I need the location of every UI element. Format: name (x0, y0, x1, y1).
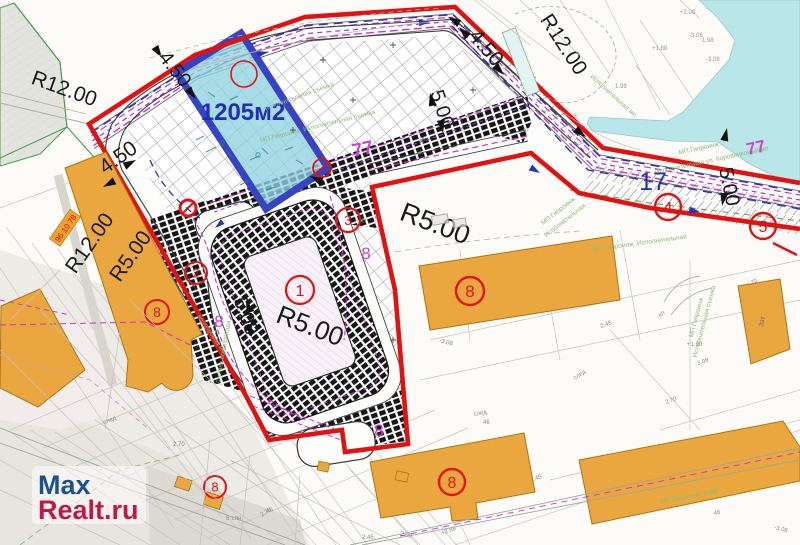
svg-text:2: 2 (192, 266, 199, 281)
svg-text:3: 3 (344, 212, 352, 228)
svg-text:-3.08: -3.08 (706, 57, 720, 63)
svg-text:8: 8 (465, 282, 474, 301)
svg-text:77: 77 (350, 137, 375, 162)
svg-text:2.70: 2.70 (173, 442, 185, 448)
svg-text:5: 5 (759, 219, 768, 236)
svg-text:4: 4 (664, 200, 673, 217)
svg-text:46: 46 (483, 420, 490, 426)
svg-text:+1.88: +1.88 (652, 46, 668, 52)
svg-text:1.98: 1.98 (615, 84, 627, 90)
svg-text:17: 17 (639, 168, 667, 196)
svg-text:8: 8 (214, 312, 223, 331)
svg-text:8: 8 (361, 244, 370, 263)
svg-text:8: 8 (211, 480, 218, 495)
svg-text:77: 77 (745, 136, 767, 159)
svg-text:1.98: 1.98 (702, 38, 714, 44)
svg-text:8: 8 (153, 304, 161, 320)
svg-text:8: 8 (448, 475, 457, 492)
svg-text:6 т.пн: 6 т.пн (226, 516, 241, 522)
svg-text:8: 8 (374, 421, 383, 440)
svg-text:1: 1 (296, 283, 305, 300)
svg-text:Realt.ru: Realt.ru (38, 495, 139, 525)
